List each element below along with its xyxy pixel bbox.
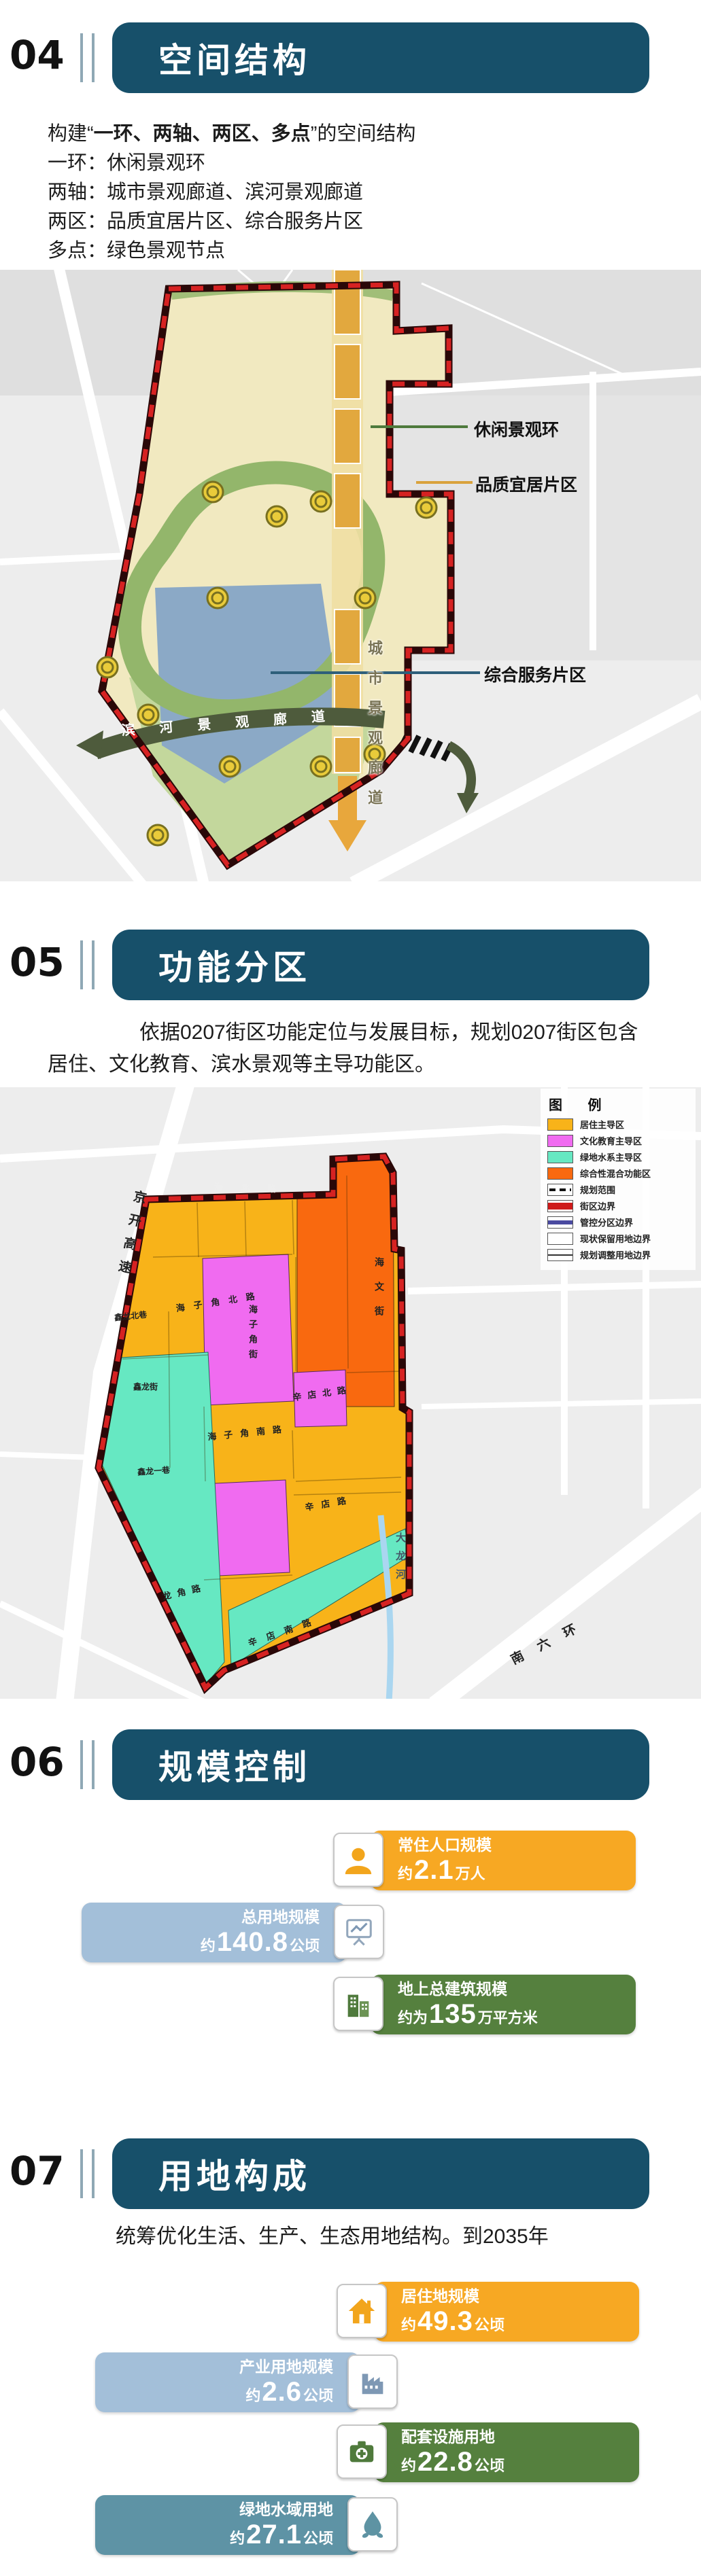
double-bar-divider bbox=[80, 1740, 95, 1789]
swatch-control-boundary bbox=[547, 1216, 573, 1229]
section-title: 空间结构 bbox=[158, 33, 311, 82]
spatial-structure-drawing bbox=[0, 270, 701, 881]
stat-value: 约2.1万人 bbox=[398, 1855, 623, 1891]
para-line: 两区：品质宜居片区、综合服务片区 bbox=[48, 207, 415, 236]
stat-label: 常住人口规模 bbox=[398, 1835, 623, 1855]
section-05-text: 依据0207街区功能定位与发展目标，规划0207街区包含 居住、文化教育、滨水景… bbox=[48, 1017, 673, 1080]
planning-infographic-page: 04 空间结构 构建“一环、两轴、两区、多点”的空间结构 一环：休闲景观环 两轴… bbox=[0, 0, 701, 2576]
section-title: 规模控制 bbox=[158, 1740, 311, 1789]
swatch-greenwater bbox=[547, 1151, 573, 1163]
spatial-structure-map: 休闲景观环 品质宜居片区 综合服务片区 城市景观廊道 滨河景观廊道 bbox=[0, 270, 701, 881]
stat-label: 居住地规模 bbox=[401, 2286, 627, 2306]
stat-label: 产业用地规模 bbox=[107, 2357, 333, 2377]
functional-zoning-map: 图 例 居住主导区 文化教育主导区 绿地水系主导区 综合性混合功能区 规划范围 … bbox=[0, 1087, 701, 1699]
street-label: 海北路 bbox=[214, 1180, 294, 1195]
para-line: 多点：绿色景观节点 bbox=[48, 236, 415, 266]
stat-label: 配套设施用地 bbox=[401, 2427, 627, 2447]
legend-item: 规划范围 bbox=[547, 1183, 693, 1196]
stat-card-facility-land: 配套设施用地 约22.8公顷 bbox=[374, 2422, 639, 2482]
stat-value: 约22.8公顷 bbox=[401, 2447, 627, 2483]
section-07-text: 统筹优化生活、生产、生态用地结构。到2035年 bbox=[116, 2221, 673, 2253]
legend-item: 绿地水系主导区 bbox=[547, 1150, 693, 1163]
stat-value: 约49.3公顷 bbox=[401, 2306, 627, 2342]
city-corridor-segments bbox=[335, 270, 360, 773]
legend-item: 居住主导区 bbox=[547, 1118, 693, 1131]
legend-item: 规划调整用地边界 bbox=[547, 1248, 693, 1261]
stat-value: 约2.6公顷 bbox=[107, 2377, 333, 2413]
stat-label: 绿地水域用地 bbox=[107, 2499, 333, 2520]
stat-card-greenwater-land: 绿地水域用地 约27.1公顷 bbox=[95, 2495, 360, 2555]
stat-card-residential-land: 居住地规模 约49.3公顷 bbox=[374, 2282, 639, 2342]
street-label: 海文街 bbox=[373, 1257, 386, 1330]
street-label: 鑫龙一巷 bbox=[137, 1464, 170, 1477]
label-residential-district: 品质宜居片区 bbox=[475, 472, 577, 496]
double-bar-divider bbox=[80, 940, 95, 989]
legend-item: 综合性混合功能区 bbox=[547, 1167, 693, 1180]
section-number: 04 bbox=[10, 32, 65, 78]
section-04-text: 构建“一环、两轴、两区、多点”的空间结构 一环：休闲景观环 两轴：城市景观廊道、… bbox=[48, 120, 415, 266]
para-line: 一环：休闲景观环 bbox=[48, 149, 415, 178]
section-07-header: 07 用地构成 bbox=[0, 2138, 701, 2209]
section-05-header: 05 功能分区 bbox=[0, 930, 701, 1000]
para-line: 构建“一环、两轴、两区、多点”的空间结构 bbox=[48, 120, 415, 149]
section-title-bar: 用地构成 bbox=[112, 2138, 649, 2209]
legend-title: 图 例 bbox=[549, 1094, 693, 1114]
section-title-bar: 规模控制 bbox=[112, 1729, 649, 1800]
section-number: 06 bbox=[10, 1739, 65, 1785]
stat-card-population: 常住人口规模 约2.1万人 bbox=[371, 1831, 636, 1890]
swatch-culture bbox=[547, 1135, 573, 1147]
para-line: 统筹优化生活、生产、生态用地结构。到2035年 bbox=[116, 2221, 673, 2253]
label-city-corridor: 城市景观廊道 bbox=[363, 640, 385, 819]
stat-value: 约140.8公顷 bbox=[94, 1927, 320, 1963]
map-legend: 图 例 居住主导区 文化教育主导区 绿地水系主导区 综合性混合功能区 规划范围 … bbox=[541, 1089, 696, 1270]
stat-card-building-scale: 地上总建筑规模 约为135万平方米 bbox=[371, 1975, 636, 2034]
para-line: 居住、文化教育、滨水景观等主导功能区。 bbox=[48, 1048, 673, 1080]
section-title: 功能分区 bbox=[158, 940, 311, 989]
swatch-retained-land bbox=[547, 1233, 573, 1245]
section-title-bar: 空间结构 bbox=[112, 22, 649, 93]
label-service-district: 综合服务片区 bbox=[484, 662, 586, 686]
swatch-planning-extent bbox=[547, 1184, 573, 1196]
double-bar-divider bbox=[80, 33, 95, 82]
section-number: 05 bbox=[10, 939, 65, 985]
double-bar-divider bbox=[80, 2149, 95, 2198]
stat-value: 约为135万平方米 bbox=[398, 1999, 623, 2035]
stat-card-total-land: 总用地规模 约140.8公顷 bbox=[82, 1903, 347, 1962]
section-06-header: 06 规模控制 bbox=[0, 1729, 701, 1800]
stat-card-industry-land: 产业用地规模 约2.6公顷 bbox=[95, 2352, 360, 2412]
swatch-residential bbox=[547, 1118, 573, 1131]
label-leisure-ring: 休闲景观环 bbox=[474, 417, 559, 441]
swatch-adjusted-land bbox=[547, 1249, 573, 1261]
legend-item: 文化教育主导区 bbox=[547, 1134, 693, 1147]
section-number: 07 bbox=[10, 2148, 65, 2194]
stat-label: 总用地规模 bbox=[94, 1907, 320, 1927]
legend-item: 街区边界 bbox=[547, 1199, 693, 1212]
para-line: 依据0207街区功能定位与发展目标，规划0207街区包含 bbox=[48, 1017, 673, 1048]
legend-item: 现状保留用地边界 bbox=[547, 1232, 693, 1245]
swatch-block-boundary bbox=[547, 1200, 573, 1212]
street-label: 大龙河 bbox=[393, 1532, 407, 1587]
para-line: 两轴：城市景观廊道、滨河景观廊道 bbox=[48, 178, 415, 207]
stat-label: 地上总建筑规模 bbox=[398, 1979, 623, 1999]
legend-item: 管控分区边界 bbox=[547, 1216, 693, 1229]
stat-value: 约27.1公顷 bbox=[107, 2520, 333, 2556]
swatch-mixed bbox=[547, 1167, 573, 1180]
section-04-header: 04 空间结构 bbox=[0, 22, 701, 93]
street-label: 鑫龙街 bbox=[133, 1381, 158, 1392]
section-title-bar: 功能分区 bbox=[112, 930, 649, 1000]
section-title: 用地构成 bbox=[158, 2149, 311, 2198]
street-label: 海子角街 bbox=[246, 1305, 259, 1364]
